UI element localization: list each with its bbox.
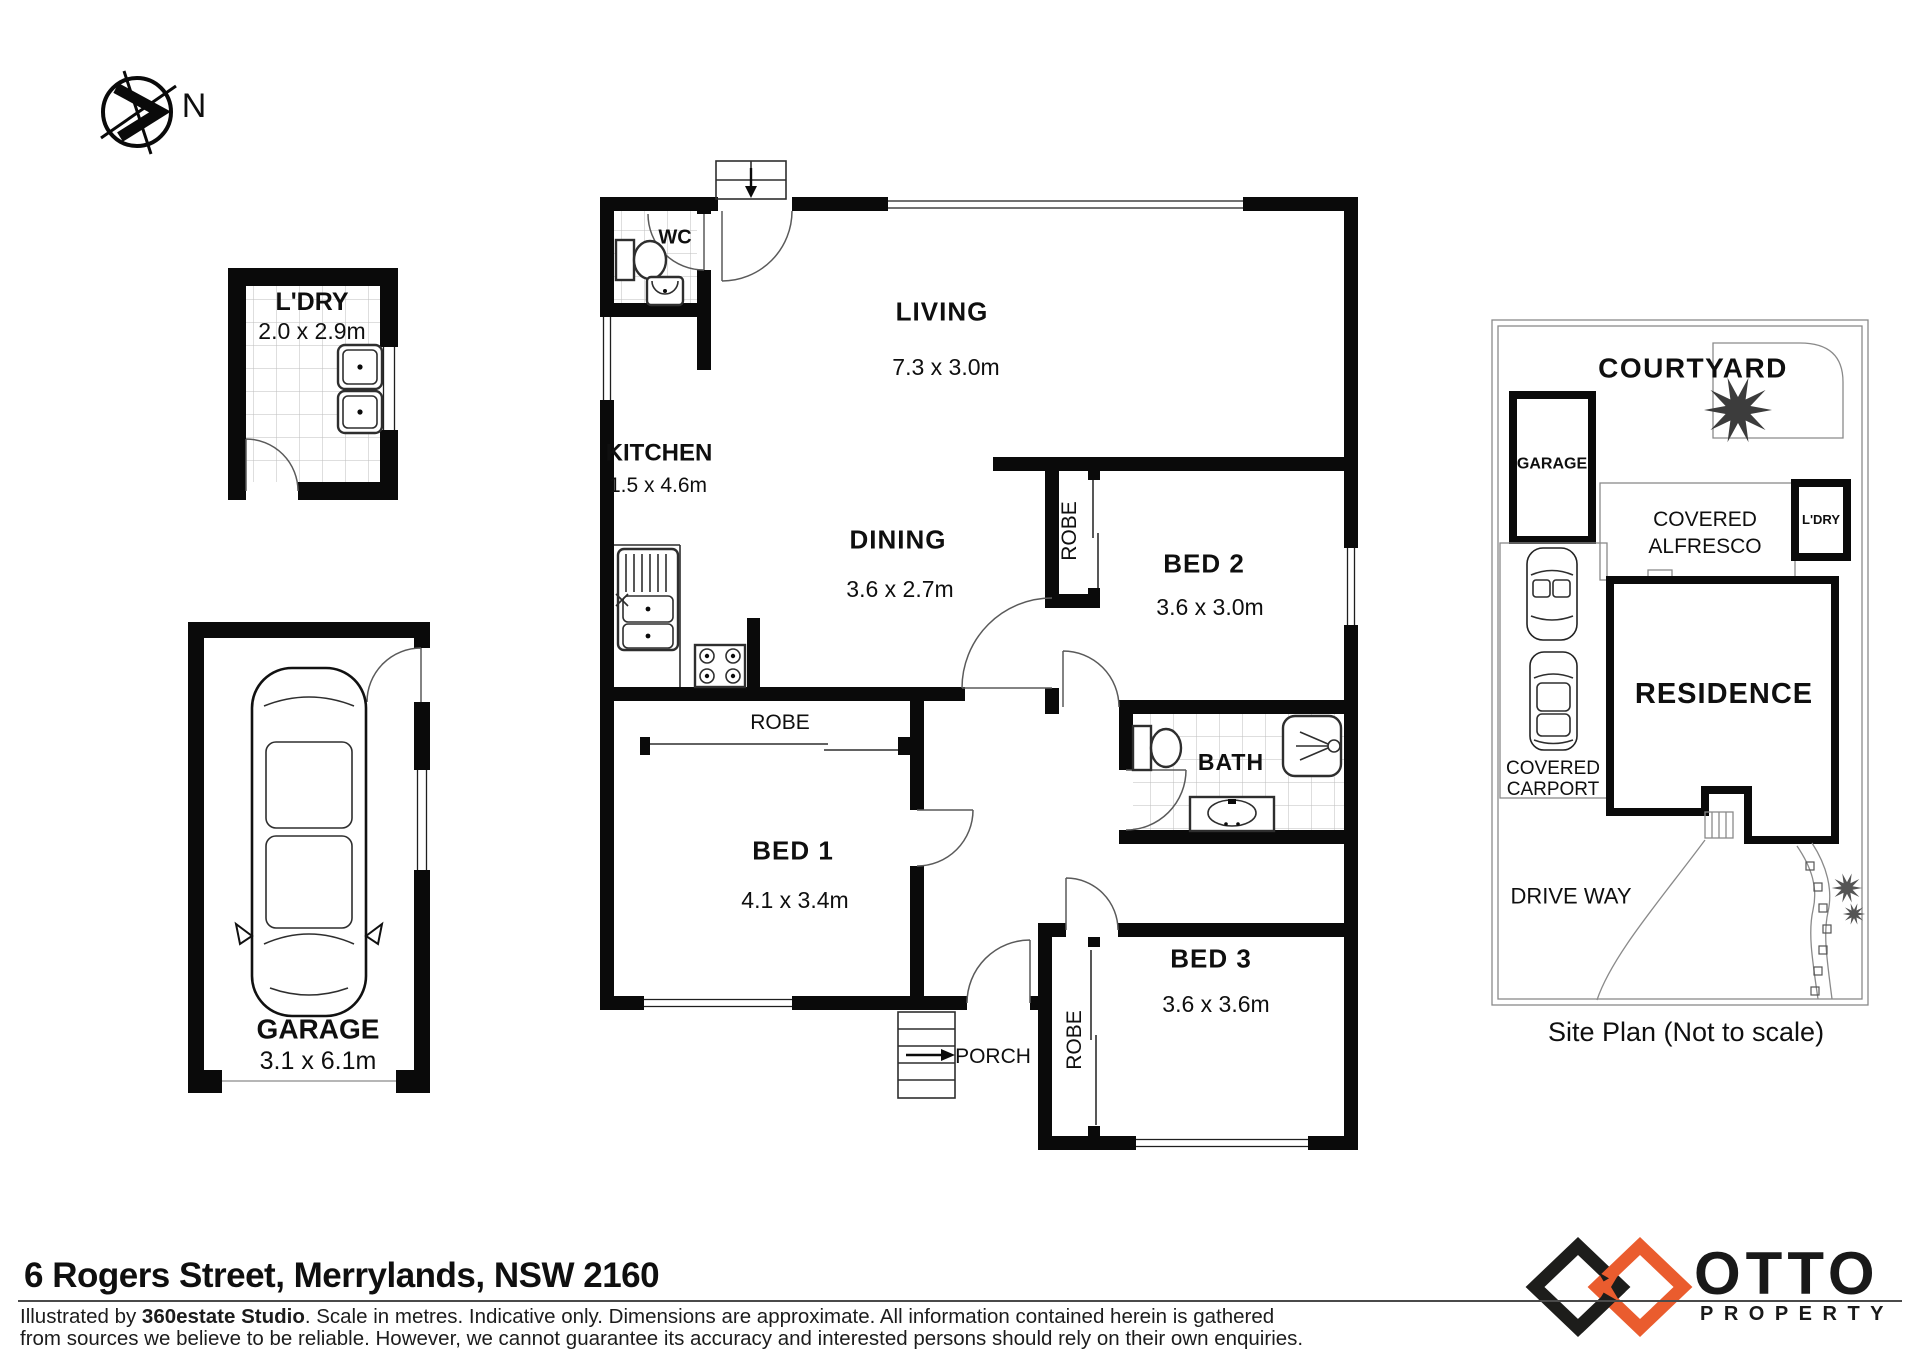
property-address: 6 Rogers Street, Merrylands, NSW 2160 xyxy=(24,1256,659,1296)
disclaimer-line1-rest: . Scale in metres. Indicative only. Dime… xyxy=(305,1305,1274,1328)
robe-sliding-doors xyxy=(640,471,1100,1136)
wc-basin-icon xyxy=(647,277,683,305)
residence-outline xyxy=(1610,580,1835,840)
floorplan-drawing xyxy=(0,0,1920,1357)
room-dims-kitchen: 1.5 x 4.6m xyxy=(609,475,707,497)
site-label-carport: COVEREDCARPORT xyxy=(1506,758,1600,800)
room-dims-bed3: 3.6 x 3.6m xyxy=(1162,992,1269,1016)
disclaimer-line1: Illustrated by 360estate Studio. Scale i… xyxy=(20,1306,1303,1328)
robe-label-bed1: ROBE xyxy=(750,712,810,734)
room-dims-garage: 3.1 x 6.1m xyxy=(260,1048,377,1074)
compass-north-label: N xyxy=(182,89,207,125)
stove-icon xyxy=(695,645,745,687)
site-label-carport-line1: COVERED xyxy=(1506,758,1600,779)
vanity-basin-icon xyxy=(1190,797,1274,831)
robe-label-bed3: ROBE xyxy=(1064,1010,1086,1070)
site-label-courtyard: COURTYARD xyxy=(1598,353,1788,382)
entry-step xyxy=(716,161,786,199)
room-label-garage: GARAGE xyxy=(257,1014,380,1043)
disclaimer-studio: 360estate Studio xyxy=(142,1305,305,1328)
site-label-alfresco-line1: COVERED xyxy=(1648,506,1761,533)
shower-icon xyxy=(1283,716,1341,776)
room-dims-dining: 3.6 x 2.7m xyxy=(846,577,953,601)
room-label-ldry: L'DRY xyxy=(275,289,348,315)
site-label-garage: GARAGE xyxy=(1517,457,1587,474)
room-label-living: LIVING xyxy=(896,298,989,325)
disclaimer: Illustrated by 360estate Studio. Scale i… xyxy=(20,1306,1303,1349)
otto-logo-mark xyxy=(1535,1246,1683,1328)
site-label-alfresco: COVEREDALFRESCO xyxy=(1648,506,1761,560)
carport-car-icon xyxy=(1530,652,1577,750)
room-dims-living: 7.3 x 3.0m xyxy=(892,355,999,379)
site-label-driveway: DRIVE WAY xyxy=(1510,884,1631,907)
room-label-bed3: BED 3 xyxy=(1170,945,1252,972)
disclaimer-prefix: Illustrated by xyxy=(20,1305,142,1328)
room-dims-bed2: 3.6 x 3.0m xyxy=(1156,595,1263,619)
disclaimer-line2: from sources we believe to be reliable. … xyxy=(20,1328,1303,1350)
north-compass-icon xyxy=(101,71,176,154)
room-label-bath: BATH xyxy=(1198,750,1264,774)
kitchen-sink-icon xyxy=(614,545,680,687)
site-label-carport-line2: CARPORT xyxy=(1506,779,1600,800)
stepping-stones xyxy=(1806,862,1831,995)
logo-subtitle: PROPERTY xyxy=(1700,1303,1894,1326)
room-label-bed2: BED 2 xyxy=(1163,550,1245,577)
site-label-ldry: L'DRY xyxy=(1802,513,1840,527)
logo-wordmark: OTTO xyxy=(1694,1244,1880,1304)
room-label-kitchen: KITCHEN xyxy=(606,440,713,465)
room-label-wc: WC xyxy=(658,228,691,249)
tree-icon xyxy=(1704,378,1772,443)
laundry-sink-icon xyxy=(338,345,382,433)
site-label-residence: RESIDENCE xyxy=(1635,679,1813,709)
room-dims-ldry: 2.0 x 2.9m xyxy=(258,319,365,343)
car-top-view-icon xyxy=(236,668,382,1016)
footer-divider xyxy=(18,1300,1902,1302)
site-label-alfresco-line2: ALFRESCO xyxy=(1648,533,1761,560)
carport-car-icon xyxy=(1527,548,1577,640)
room-label-dining: DINING xyxy=(850,526,947,553)
room-label-bed1: BED 1 xyxy=(752,837,834,864)
floorplan-page: { "page": {"background": "#ffffff"}, "co… xyxy=(0,0,1920,1357)
robe-label-bed2: ROBE xyxy=(1059,501,1081,561)
shrub-icon xyxy=(1832,873,1863,902)
site-plan-caption: Site Plan (Not to scale) xyxy=(1548,1018,1824,1046)
porch-steps xyxy=(898,1012,955,1098)
bath-toilet-icon xyxy=(1133,726,1181,770)
room-label-porch: PORCH xyxy=(955,1046,1031,1068)
room-dims-bed1: 4.1 x 3.4m xyxy=(741,888,848,912)
